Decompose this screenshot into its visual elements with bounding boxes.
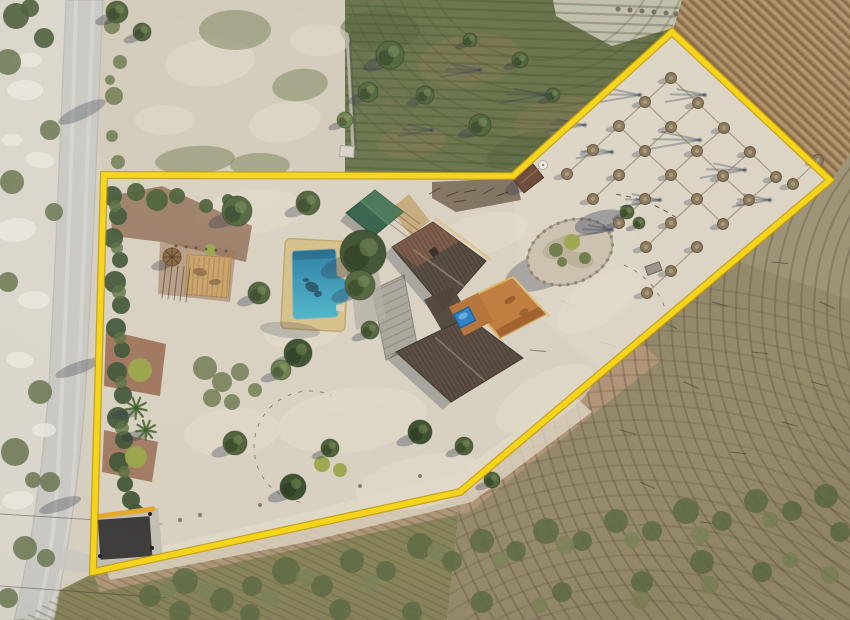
light-vignette [0,0,850,620]
aerial-photo-canvas [0,0,850,620]
aerial-photo [0,0,850,620]
photo-overlay-layer [0,0,850,620]
